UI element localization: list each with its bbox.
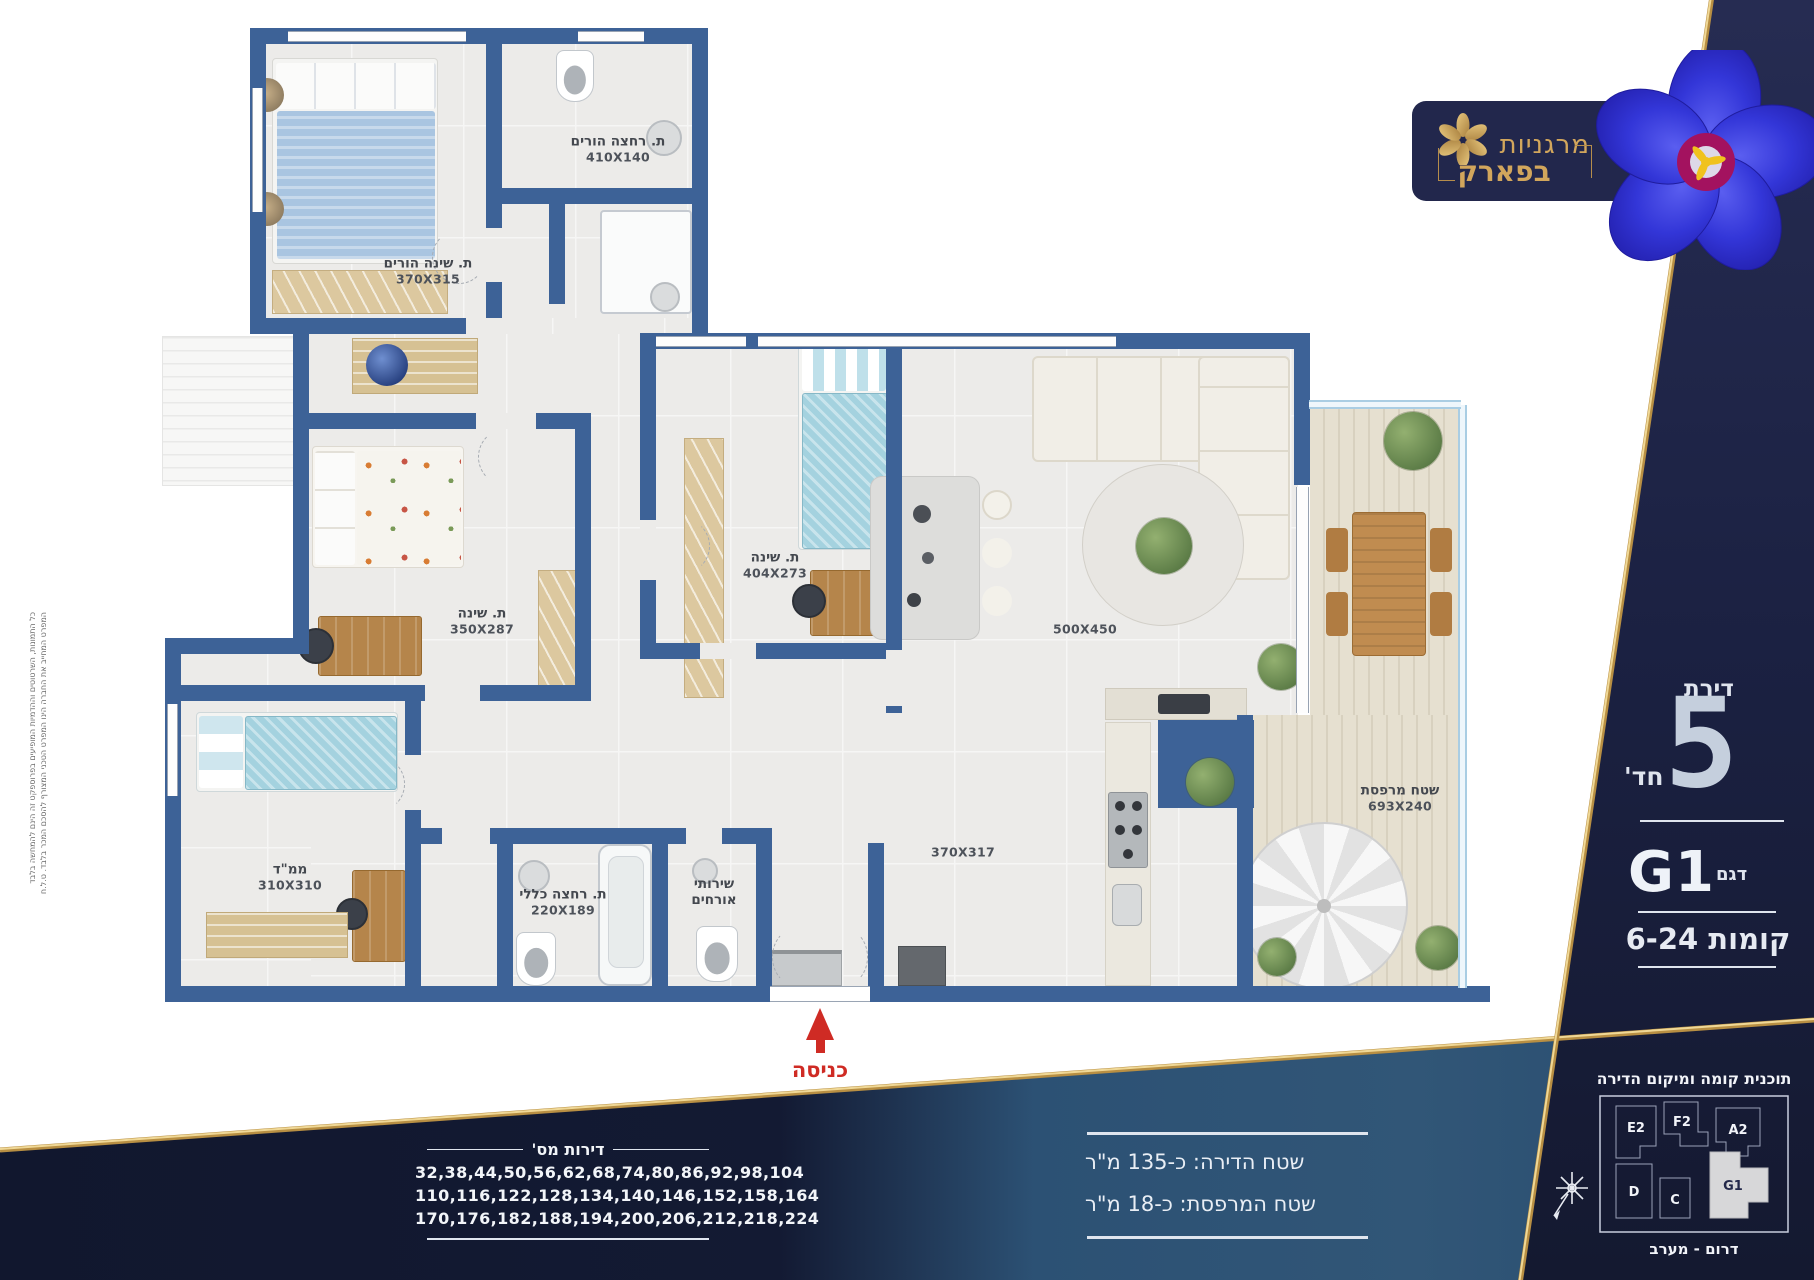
pillows xyxy=(199,716,243,788)
wall xyxy=(502,188,708,204)
door-opening xyxy=(886,650,902,706)
wall xyxy=(181,685,591,701)
wall xyxy=(756,843,772,1002)
balcony-plant xyxy=(1258,938,1296,976)
balcony-railing xyxy=(1458,405,1467,988)
room-label-guest-wc: שירותי אורחים xyxy=(691,877,736,909)
model-word: דגם xyxy=(1716,864,1747,885)
tub-basin xyxy=(608,856,644,968)
floral-blanket xyxy=(357,451,461,565)
entry-label: כניסה xyxy=(770,1058,870,1082)
legal-disclaimer: כל התמונות, השרטוטים וההדמיות המופיעים ב… xyxy=(28,612,49,952)
window xyxy=(252,88,263,212)
bedroom2-closet xyxy=(538,570,578,700)
unit-label-highlighted: G1 xyxy=(1723,1179,1743,1194)
oven xyxy=(898,946,946,986)
room-label-general-bath: ת. רחצה כללי 220X189 xyxy=(519,888,606,919)
floor-plate-diagram: E2 F2 A2 D C G1 xyxy=(1598,1094,1790,1234)
door-arc xyxy=(478,428,536,486)
model-code: G1 xyxy=(1628,840,1714,905)
window xyxy=(758,336,1116,347)
suite-opening-floor xyxy=(466,318,692,334)
stair-lobby xyxy=(162,336,295,486)
wall xyxy=(640,349,656,659)
disclaimer-line: כל התמונות, השרטוטים וההדמיות המופיעים ב… xyxy=(28,612,39,952)
balcony-railing xyxy=(1309,400,1461,409)
window xyxy=(656,336,746,347)
apartment-numbers-row: 170,176,182,188,194,200,206,212,218,224 xyxy=(415,1209,721,1228)
panel-divider xyxy=(1638,966,1776,968)
globe-decor xyxy=(366,344,408,386)
shower-drain xyxy=(650,282,680,312)
kitchen-sink xyxy=(1112,884,1142,926)
pillows xyxy=(276,63,436,109)
unit-label: E2 xyxy=(1627,1121,1645,1136)
wall xyxy=(165,638,181,1002)
apartment-rooms-number: 5 xyxy=(1664,690,1739,798)
orientation-label: דרום - מערב xyxy=(1598,1240,1790,1258)
kitchen-plant xyxy=(1186,758,1234,806)
door-opening xyxy=(425,685,480,701)
room-label-balcony: שטח מרפסת 693X240 xyxy=(1361,784,1440,815)
bracket-decoration xyxy=(1438,148,1455,181)
area-bottom-rule xyxy=(1087,1236,1368,1239)
entry-door-arc xyxy=(820,928,868,986)
room-label-living: 500X450 xyxy=(1053,623,1117,638)
apartment-numbers-header: דירות מס' xyxy=(427,1140,709,1159)
floor-plan: ת. שינה הורים 370X315 ת. רחצה הורים 410X… xyxy=(0,0,1520,1120)
numbers-bottom-rule xyxy=(427,1238,709,1240)
entry-arrow-icon xyxy=(806,1008,834,1040)
bracket-decoration xyxy=(1575,145,1592,178)
pergola-chair xyxy=(1326,528,1348,572)
toilet xyxy=(556,50,594,102)
umbrella-pole xyxy=(1317,899,1331,913)
shower xyxy=(600,210,692,314)
header-line xyxy=(427,1149,523,1151)
area-top-rule xyxy=(1087,1132,1368,1135)
table-decor xyxy=(913,505,931,523)
wall xyxy=(293,333,309,653)
wall xyxy=(640,643,902,659)
dining-chair xyxy=(982,490,1012,520)
wall xyxy=(549,204,565,304)
unit-label: D xyxy=(1629,1185,1640,1200)
wall xyxy=(575,413,591,701)
balcony-glass-door xyxy=(1296,487,1309,713)
desk-chair xyxy=(792,584,826,618)
door-opening xyxy=(686,828,722,844)
room-label-master-bath: ת. רחצה הורים 410X140 xyxy=(571,135,666,166)
disclaimer-line: המפרט המחייב את החברה הינו המפרט הטכני ה… xyxy=(39,612,50,952)
room-label-mamad: ממ"ד 310X310 xyxy=(258,863,322,894)
panel-divider xyxy=(1640,820,1784,822)
apartment-area-text: שטח הדירה: כ-135 מ"ר xyxy=(1085,1150,1368,1174)
wall xyxy=(309,413,591,429)
door-arc xyxy=(654,518,710,574)
toilet xyxy=(516,932,556,986)
door-opening xyxy=(442,828,490,844)
wall xyxy=(250,318,466,334)
unit-label: F2 xyxy=(1673,1115,1691,1130)
blanket xyxy=(277,111,435,259)
room-label-bedroom-left: ת. שינה 350X287 xyxy=(450,607,514,638)
wall xyxy=(1237,715,1253,1002)
brand-name-line2: בפארק xyxy=(1456,155,1552,188)
stove xyxy=(1108,792,1148,868)
floors-range: קומות 6-24 xyxy=(1608,922,1808,956)
wall xyxy=(165,638,309,654)
pillows xyxy=(315,451,355,565)
header-line xyxy=(613,1149,709,1151)
wall xyxy=(486,28,502,228)
wall xyxy=(497,828,513,1002)
unit-label: C xyxy=(1670,1193,1680,1208)
compass-icon xyxy=(1548,1168,1596,1226)
entry-opening xyxy=(770,986,870,1002)
apartment-numbers-title: דירות מס' xyxy=(531,1140,604,1159)
wall xyxy=(486,282,502,318)
bedroom2-bed xyxy=(312,446,464,568)
balcony-plant xyxy=(1416,926,1460,970)
wall xyxy=(868,843,884,1002)
balcony-area-text: שטח המרפסת: כ-18 מ"ר xyxy=(1085,1192,1368,1216)
window xyxy=(578,31,644,42)
wall xyxy=(1294,333,1310,485)
wall xyxy=(405,701,421,1002)
master-bed xyxy=(272,58,438,264)
entry-arrow-stem xyxy=(816,1040,825,1053)
room-label-dining-nook: 370X317 xyxy=(931,846,995,861)
burners xyxy=(1115,801,1125,811)
room-label-master-bedroom: ת. שינה הורים 370X315 xyxy=(384,257,473,288)
door-opening xyxy=(476,413,536,429)
wall xyxy=(652,828,668,1002)
window xyxy=(288,31,466,42)
rug-plant xyxy=(1136,518,1192,574)
unit-label: A2 xyxy=(1728,1123,1747,1138)
apartment-numbers-row: 110,116,122,128,134,140,146,152,158,164 xyxy=(415,1186,721,1205)
location-title: תוכנית קומה ומיקום הדירה xyxy=(1578,1070,1810,1088)
pillows xyxy=(802,347,886,391)
room-label-bedroom-middle: ת. שינה 404X273 xyxy=(743,551,807,582)
window xyxy=(167,704,178,796)
pergola-table xyxy=(1352,512,1426,656)
apartment-numbers-row: 32,38,44,50,56,62,68,74,80,86,92,98,104 xyxy=(415,1163,721,1182)
balcony-plant xyxy=(1384,412,1442,470)
entry-door-arc xyxy=(772,928,820,986)
door-opening xyxy=(700,643,756,659)
mamad-dresser xyxy=(206,912,348,958)
door-opening xyxy=(405,755,421,810)
door-arc xyxy=(349,756,405,812)
tv xyxy=(1158,694,1210,714)
brochure-page: ת. שינה הורים 370X315 ת. רחצה הורים 410X… xyxy=(0,0,1814,1280)
rooms-word: חד' xyxy=(1624,762,1664,791)
panel-divider xyxy=(1638,911,1776,913)
toilet xyxy=(696,926,738,982)
blue-flower-photo xyxy=(1596,50,1814,270)
